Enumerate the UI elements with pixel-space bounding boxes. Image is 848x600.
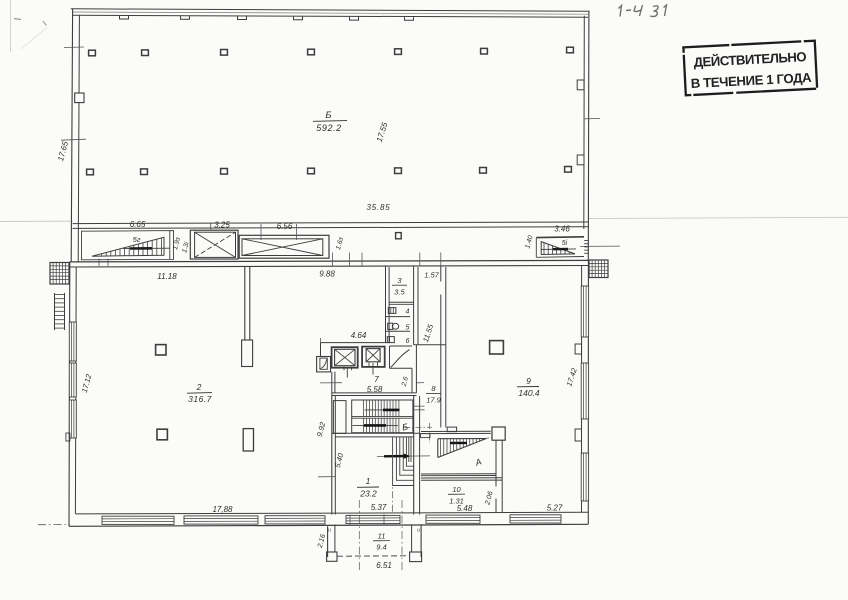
svg-text:9: 9 [526, 376, 531, 386]
svg-text:7: 7 [374, 375, 379, 384]
svg-text:Б: Б [325, 110, 331, 121]
svg-text:23.2: 23.2 [359, 489, 377, 499]
svg-text:6.65: 6.65 [130, 220, 146, 229]
svg-text:35.85: 35.85 [366, 203, 390, 212]
svg-text:5.48: 5.48 [457, 504, 473, 513]
svg-text:3.46: 3.46 [554, 225, 570, 234]
svg-text:140.4: 140.4 [518, 388, 540, 398]
svg-text:3.25: 3.25 [214, 221, 230, 230]
svg-text:10: 10 [452, 485, 461, 494]
svg-text:316.7: 316.7 [188, 394, 212, 404]
svg-text:9.88: 9.88 [319, 270, 335, 279]
svg-text:17,88: 17,88 [212, 505, 233, 514]
svg-text:1.57: 1.57 [424, 271, 439, 280]
svg-text:и: и [417, 528, 420, 534]
svg-text:17.9: 17.9 [426, 396, 441, 405]
svg-text:11: 11 [378, 532, 386, 541]
svg-text:2: 2 [196, 382, 202, 392]
svg-text:6.56: 6.56 [277, 222, 293, 231]
svg-text:4.64: 4.64 [351, 331, 367, 340]
svg-text:4: 4 [406, 309, 410, 316]
svg-text:1: 1 [366, 476, 371, 486]
svg-text:3.5: 3.5 [394, 288, 405, 297]
svg-text:5.58: 5.58 [367, 385, 383, 394]
svg-text:5: 5 [406, 325, 410, 332]
svg-text:5г: 5г [133, 235, 141, 244]
svg-text:9.4: 9.4 [376, 543, 386, 552]
svg-text:11.18: 11.18 [157, 272, 177, 281]
svg-text:592.2: 592.2 [316, 123, 342, 133]
svg-text:и: и [328, 528, 331, 534]
svg-text:6.51: 6.51 [376, 561, 392, 570]
svg-text:5і: 5і [562, 239, 568, 247]
svg-text:5.27: 5.27 [547, 504, 563, 513]
svg-text:6: 6 [406, 338, 410, 345]
svg-text:5.37: 5.37 [371, 503, 387, 512]
